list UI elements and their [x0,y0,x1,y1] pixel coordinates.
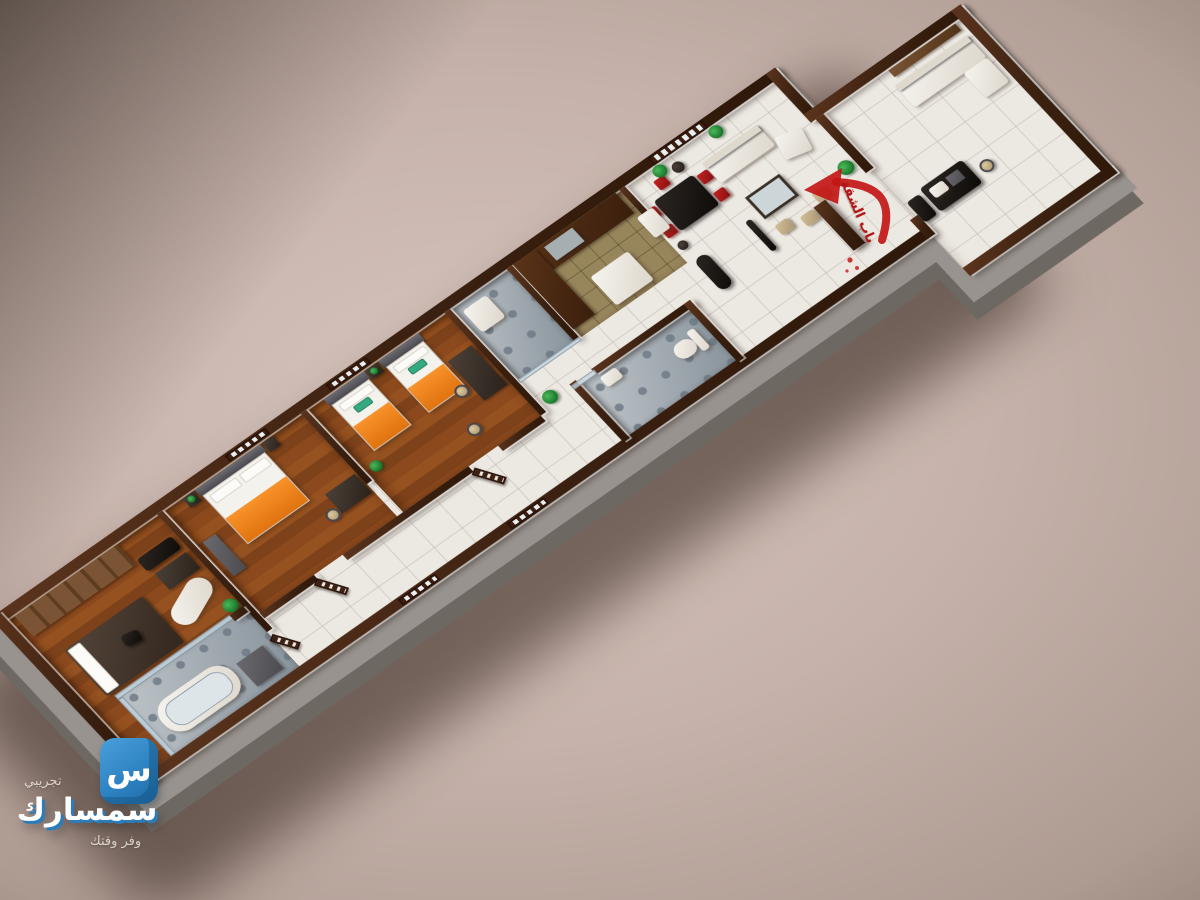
desk-machine-gray [945,169,966,186]
seen-letter-icon: س [100,740,158,800]
isometric-scene [0,0,1118,827]
desk-machine-white [928,180,950,199]
semsark-watermark: س تجريبي سمسارك وفر وقتك [6,730,186,900]
watermark-tagline: وفر وقتك [90,834,141,849]
watermark-label-top: تجريبي [24,774,62,789]
watermark-brand-name: سمسارك [6,792,168,828]
laptop-on-bed [120,629,143,647]
floor-plan-render: باب الشقة س تجريبي سمسارك وفر وقتك [0,0,1200,900]
